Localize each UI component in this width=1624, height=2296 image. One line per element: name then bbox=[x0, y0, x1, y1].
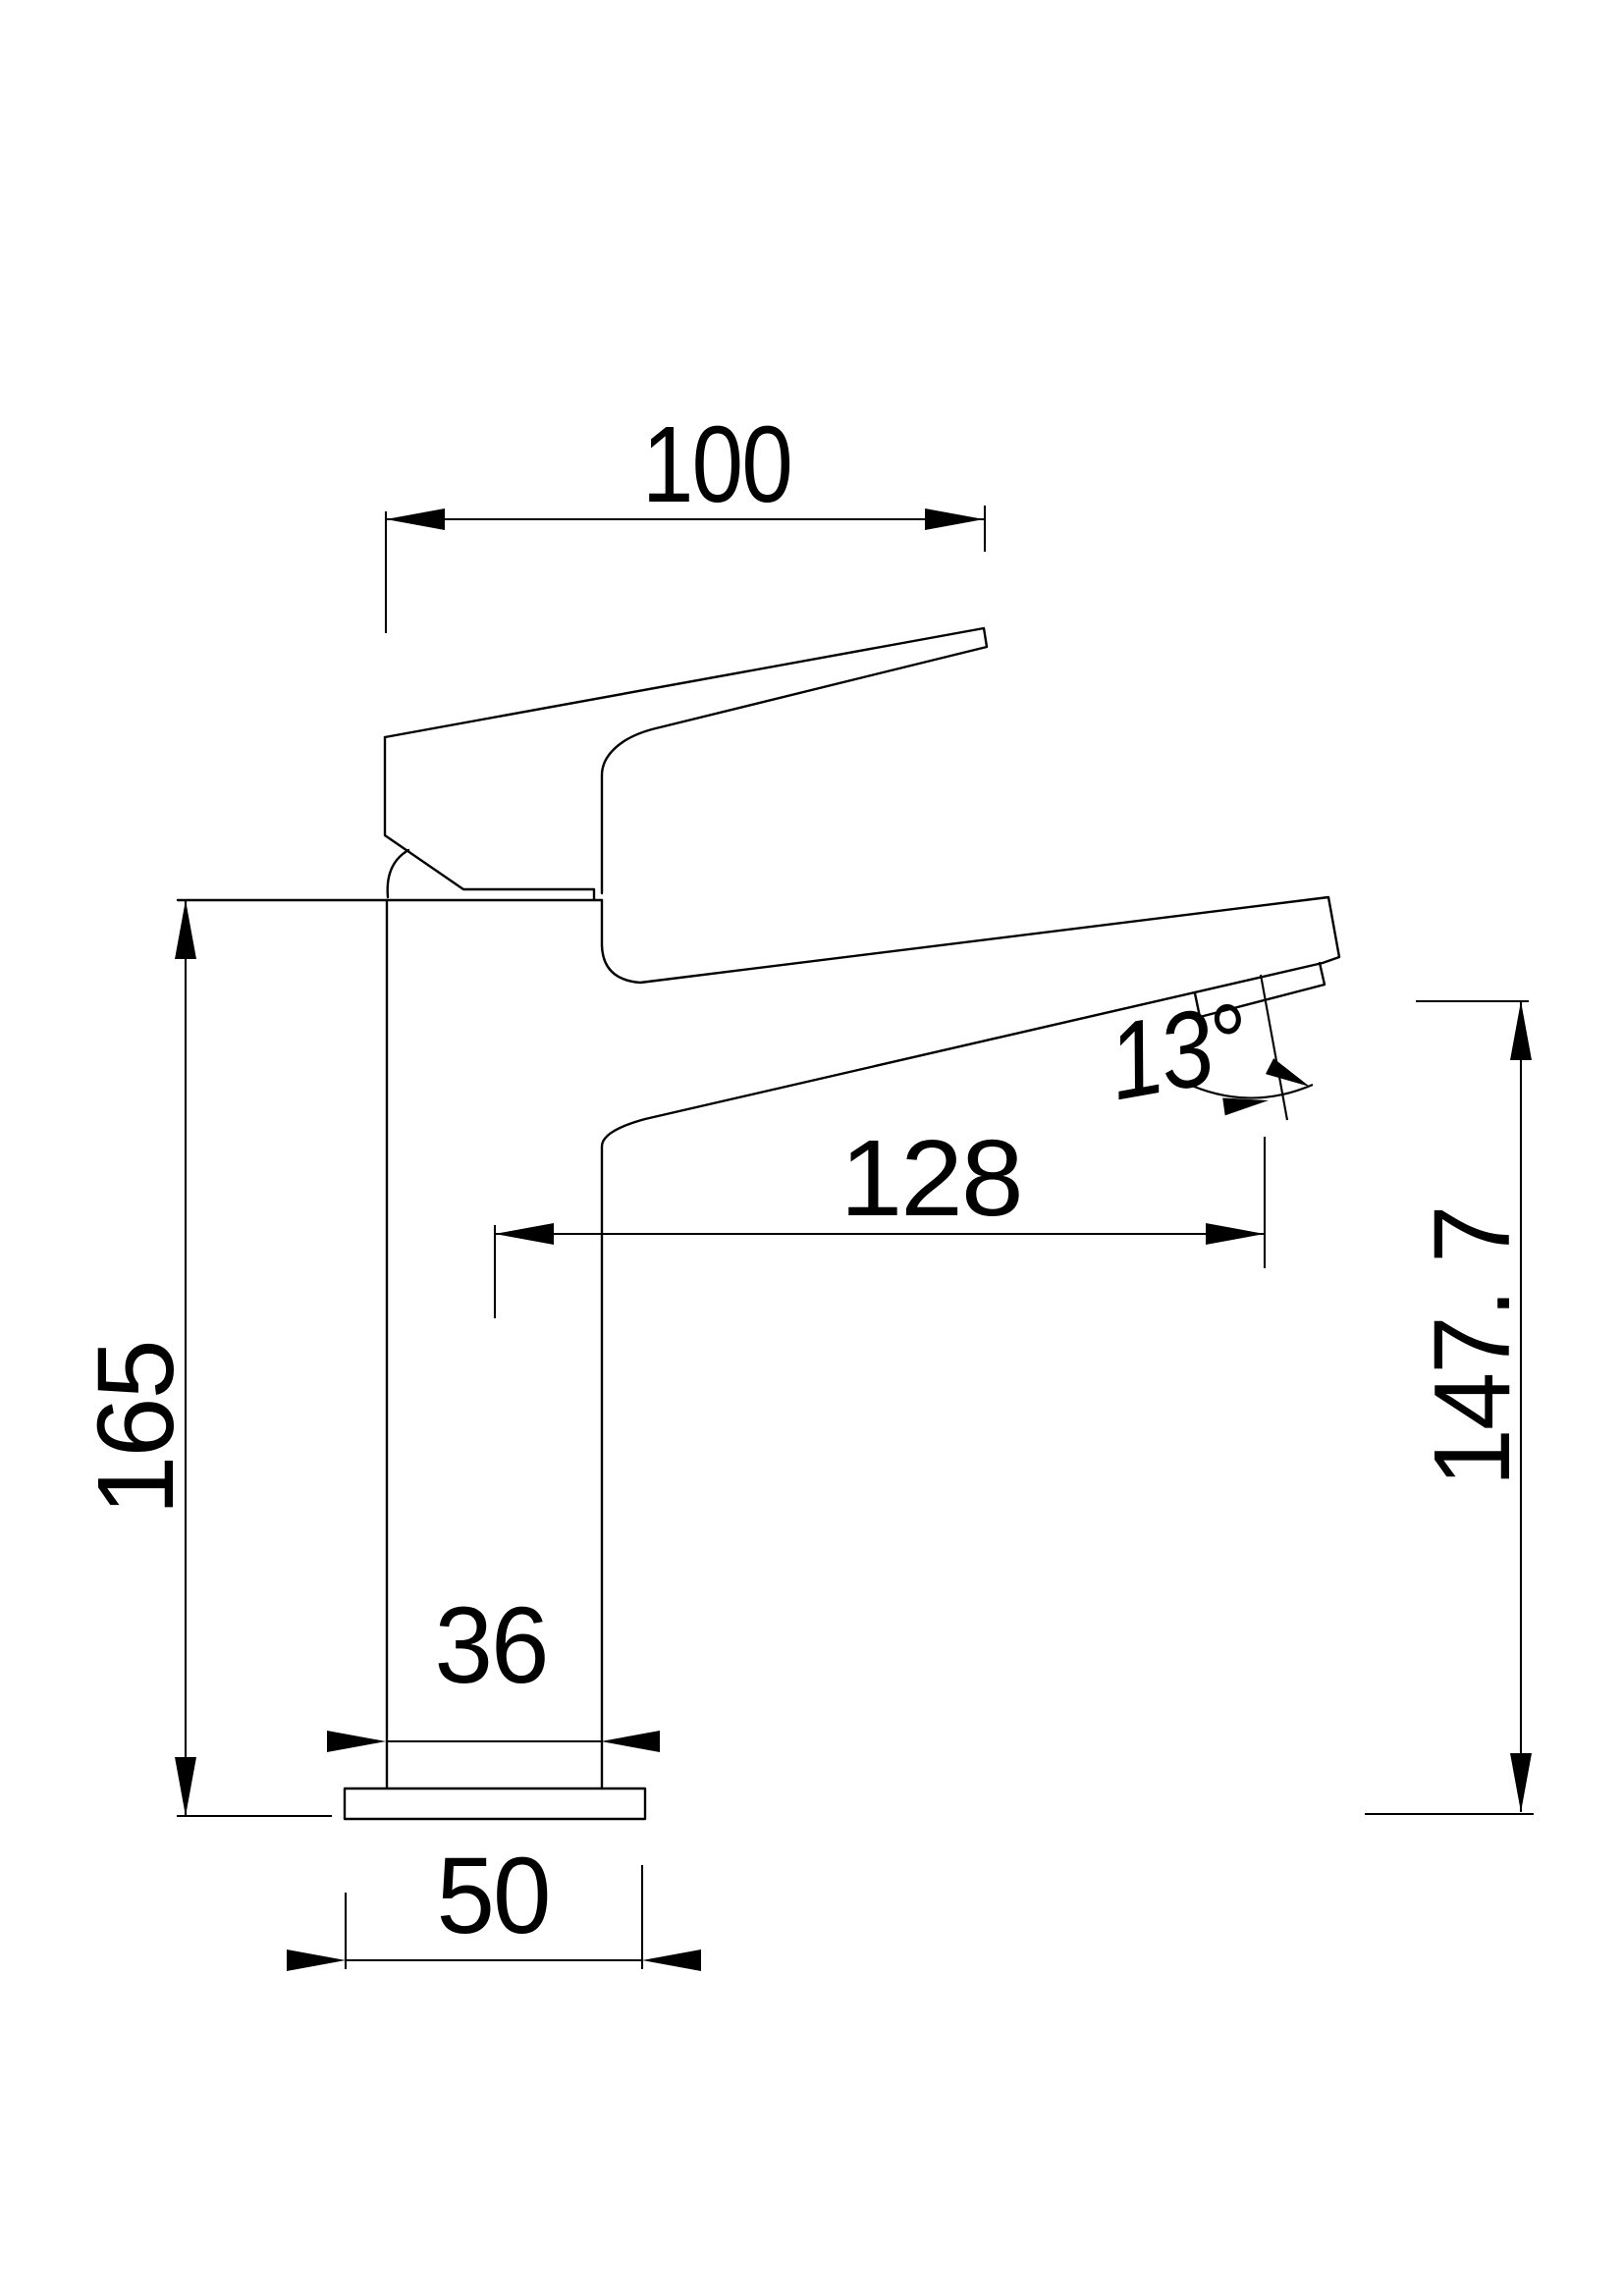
handle-lever-path bbox=[385, 628, 987, 893]
dimension-base-width: 50 bbox=[287, 1836, 701, 1971]
dim-100-label: 100 bbox=[642, 404, 791, 525]
dim-100-arrow-left bbox=[386, 508, 445, 530]
dim-147-arrow-bottom bbox=[1510, 1753, 1532, 1812]
technical-drawing-page: 100 165 128 13° bbox=[0, 0, 1624, 2296]
dimension-handle-length: 100 bbox=[386, 404, 985, 633]
dim-50-arrow-right bbox=[642, 1949, 701, 1971]
handle-base-path bbox=[385, 737, 594, 899]
dimension-body-width: 36 bbox=[327, 1585, 660, 1752]
angle-13-arrow-right bbox=[1266, 1058, 1314, 1095]
dim-147-label: 147. 7 bbox=[1412, 1207, 1533, 1487]
dim-128-arrow-right bbox=[1206, 1223, 1265, 1245]
dimension-spout-reach: 128 bbox=[495, 1118, 1265, 1318]
dimension-total-height: 165 bbox=[76, 900, 332, 1816]
dim-50-label: 50 bbox=[437, 1836, 550, 1956]
dim-165-arrow-top bbox=[175, 900, 196, 959]
dimension-outlet-height: 147. 7 bbox=[1365, 1001, 1534, 1814]
dim-128-label: 128 bbox=[840, 1118, 1022, 1239]
dim-100-arrow-right bbox=[925, 508, 984, 530]
dim-128-arrow-left bbox=[495, 1223, 554, 1245]
faucet-outline bbox=[178, 628, 1339, 1819]
dim-165-label: 165 bbox=[76, 1341, 196, 1516]
dim-36-arrow-right bbox=[601, 1731, 660, 1752]
dim-36-label: 36 bbox=[435, 1585, 548, 1706]
cartridge-arc bbox=[388, 850, 408, 897]
dim-36-arrow-left bbox=[327, 1731, 386, 1752]
dimension-outlet-angle: 13° bbox=[1100, 975, 1314, 1123]
dim-147-arrow-top bbox=[1510, 1001, 1532, 1060]
dim-165-arrow-bottom bbox=[175, 1757, 196, 1816]
dim-50-arrow-left bbox=[287, 1949, 346, 1971]
angle-13-label: 13° bbox=[1100, 981, 1256, 1123]
base-plate bbox=[345, 1789, 645, 1819]
faucet-dimension-drawing: 100 165 128 13° bbox=[0, 0, 1624, 2296]
